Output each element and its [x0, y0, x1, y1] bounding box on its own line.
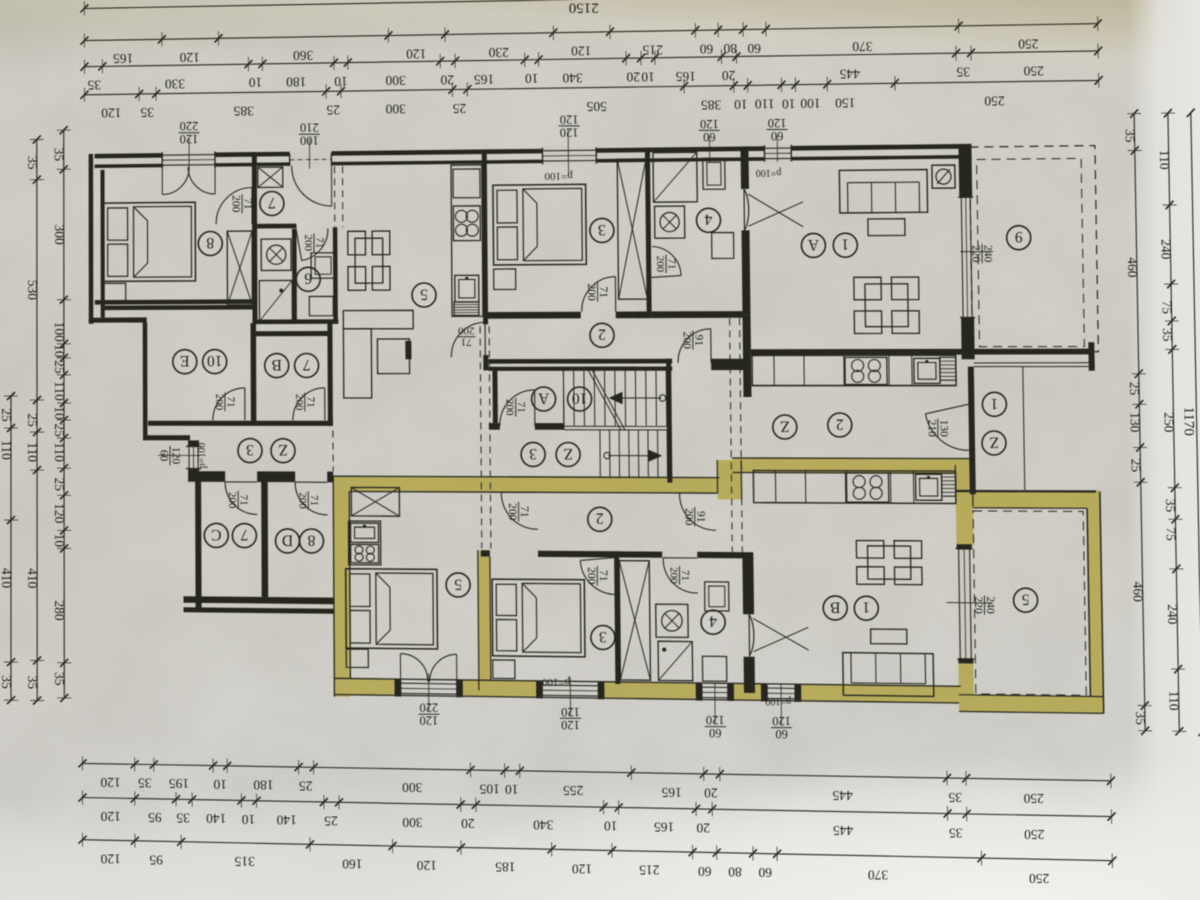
svg-text:8: 8: [206, 234, 214, 251]
svg-text:250: 250: [1023, 64, 1044, 79]
svg-text:Z: Z: [989, 433, 998, 450]
svg-text:25: 25: [299, 778, 313, 793]
svg-text:1: 1: [862, 599, 870, 616]
svg-text:180: 180: [286, 75, 307, 90]
svg-text:E: E: [180, 352, 189, 369]
svg-text:20: 20: [696, 821, 710, 836]
svg-text:120: 120: [417, 858, 438, 873]
svg-text:100: 100: [52, 322, 67, 343]
svg-text:71: 71: [308, 495, 320, 506]
svg-text:2: 2: [596, 510, 604, 527]
svg-text:3: 3: [599, 628, 607, 645]
svg-text:7: 7: [240, 526, 248, 543]
svg-text:300: 300: [402, 815, 423, 830]
svg-text:25: 25: [25, 413, 40, 427]
svg-text:200: 200: [302, 234, 314, 251]
svg-text:200: 200: [680, 332, 692, 350]
svg-text:71: 71: [679, 570, 691, 581]
svg-text:25: 25: [453, 101, 467, 116]
svg-text:35: 35: [1133, 711, 1148, 725]
svg-text:71: 71: [518, 506, 530, 518]
svg-text:200: 200: [457, 325, 474, 337]
svg-text:195: 195: [169, 776, 190, 791]
svg-text:165: 165: [474, 72, 495, 87]
svg-text:75: 75: [1164, 527, 1179, 541]
svg-text:200: 200: [585, 567, 597, 585]
svg-text:250: 250: [1023, 791, 1044, 806]
svg-text:35: 35: [1160, 328, 1175, 342]
svg-text:71: 71: [461, 336, 472, 348]
svg-text:B: B: [830, 598, 840, 615]
svg-text:10: 10: [782, 96, 796, 111]
svg-text:240: 240: [982, 245, 994, 263]
svg-text:105: 105: [479, 782, 500, 797]
svg-text:110: 110: [1167, 691, 1182, 711]
svg-text:10: 10: [52, 534, 67, 548]
svg-text:250: 250: [1024, 827, 1045, 842]
svg-text:35: 35: [948, 790, 962, 805]
svg-text:2: 2: [836, 415, 844, 432]
svg-text:250: 250: [1018, 36, 1039, 51]
svg-text:20: 20: [626, 70, 640, 85]
svg-text:150: 150: [835, 96, 856, 111]
svg-text:200: 200: [654, 256, 666, 273]
svg-text:35: 35: [949, 825, 963, 840]
svg-text:4: 4: [704, 211, 712, 228]
svg-text:370: 370: [868, 868, 889, 883]
svg-text:10: 10: [572, 389, 588, 406]
svg-text:p=100: p=100: [542, 676, 571, 688]
svg-text:460: 460: [1125, 257, 1140, 278]
svg-text:7: 7: [268, 194, 276, 211]
svg-text:25: 25: [326, 103, 340, 118]
svg-text:80: 80: [723, 41, 737, 56]
svg-text:25: 25: [1128, 459, 1143, 473]
svg-text:p=100: p=100: [765, 696, 791, 707]
svg-text:110: 110: [755, 97, 775, 112]
svg-text:Z: Z: [563, 445, 572, 462]
svg-text:250: 250: [1162, 412, 1177, 433]
svg-text:1170: 1170: [1181, 406, 1197, 435]
svg-text:p=100: p=100: [756, 167, 782, 178]
svg-text:75: 75: [1160, 301, 1175, 315]
svg-text:240: 240: [1159, 239, 1174, 259]
svg-text:35: 35: [0, 675, 14, 689]
svg-text:300: 300: [402, 780, 423, 795]
svg-text:10: 10: [207, 352, 223, 369]
svg-text:4: 4: [709, 613, 717, 630]
svg-text:200: 200: [213, 394, 225, 411]
svg-text:60: 60: [700, 42, 714, 57]
svg-text:110: 110: [1157, 150, 1172, 170]
svg-text:100: 100: [800, 96, 821, 111]
svg-text:120: 120: [560, 112, 579, 126]
svg-text:95: 95: [148, 810, 162, 825]
svg-text:230: 230: [488, 45, 509, 60]
svg-text:140: 140: [206, 811, 227, 826]
svg-text:35: 35: [87, 78, 101, 93]
svg-text:280: 280: [52, 600, 67, 621]
svg-text:165: 165: [113, 51, 134, 66]
svg-text:385: 385: [233, 104, 254, 119]
svg-text:240: 240: [984, 596, 996, 614]
svg-text:60: 60: [709, 726, 722, 740]
svg-text:71: 71: [314, 237, 326, 248]
svg-text:35: 35: [25, 676, 40, 690]
svg-text:385: 385: [701, 97, 722, 112]
svg-text:91: 91: [692, 334, 704, 346]
svg-text:71: 71: [304, 397, 316, 408]
svg-text:110: 110: [52, 442, 67, 462]
svg-text:35: 35: [52, 148, 67, 162]
svg-text:200: 200: [226, 492, 238, 509]
svg-text:180: 180: [253, 778, 274, 793]
svg-text:120: 120: [561, 718, 580, 732]
svg-text:10: 10: [52, 344, 67, 358]
svg-text:120: 120: [572, 861, 593, 876]
svg-text:340: 340: [533, 817, 554, 832]
svg-text:71: 71: [597, 570, 609, 582]
svg-text:7: 7: [302, 356, 310, 373]
svg-text:71: 71: [224, 397, 236, 408]
svg-text:165: 165: [676, 69, 697, 84]
svg-text:25: 25: [52, 360, 67, 374]
svg-text:220: 220: [180, 119, 199, 133]
svg-text:200: 200: [296, 492, 308, 509]
svg-text:25: 25: [1127, 382, 1142, 396]
svg-text:20: 20: [722, 68, 736, 83]
svg-text:10: 10: [242, 812, 256, 827]
svg-text:C: C: [211, 526, 221, 543]
svg-text:10: 10: [525, 71, 539, 86]
svg-text:D: D: [282, 531, 293, 548]
svg-text:10: 10: [505, 782, 519, 797]
svg-text:220: 220: [972, 596, 984, 614]
svg-text:35: 35: [1163, 499, 1178, 513]
svg-text:80: 80: [728, 865, 742, 880]
svg-text:10: 10: [604, 819, 618, 834]
svg-text:460: 460: [1131, 582, 1146, 603]
svg-text:300: 300: [385, 102, 406, 117]
svg-text:200: 200: [293, 394, 305, 411]
svg-text:5: 5: [454, 575, 462, 592]
svg-text:6: 6: [304, 270, 312, 287]
svg-text:210: 210: [925, 420, 937, 438]
svg-text:200: 200: [668, 567, 680, 584]
svg-text:35: 35: [138, 776, 152, 791]
svg-text:60: 60: [747, 41, 761, 56]
svg-text:A: A: [807, 236, 819, 253]
svg-text:25: 25: [52, 477, 67, 491]
svg-text:120: 120: [100, 851, 121, 866]
svg-text:10: 10: [52, 406, 67, 420]
svg-text:9: 9: [1015, 228, 1023, 245]
svg-text:120: 120: [100, 809, 121, 824]
svg-text:315: 315: [234, 854, 255, 869]
svg-text:120: 120: [179, 50, 200, 65]
svg-text:71: 71: [238, 495, 250, 506]
svg-text:360: 360: [293, 48, 314, 63]
svg-text:Z: Z: [780, 417, 789, 434]
svg-text:330: 330: [165, 76, 186, 91]
svg-text:505: 505: [586, 99, 607, 114]
svg-text:200: 200: [506, 503, 518, 521]
svg-text:71: 71: [666, 258, 678, 269]
svg-text:445: 445: [833, 823, 854, 838]
svg-text:250: 250: [984, 94, 1005, 109]
svg-text:200: 200: [504, 399, 516, 416]
svg-text:71: 71: [242, 198, 254, 210]
svg-text:120: 120: [700, 117, 719, 131]
svg-text:110: 110: [52, 381, 67, 401]
svg-text:130: 130: [937, 420, 949, 438]
svg-text:5: 5: [420, 285, 428, 302]
svg-text:250: 250: [1029, 871, 1050, 886]
svg-text:71: 71: [597, 286, 609, 298]
svg-text:200: 200: [230, 195, 242, 213]
svg-text:300: 300: [385, 73, 406, 88]
svg-text:120: 120: [52, 503, 67, 524]
svg-text:165: 165: [661, 785, 682, 800]
svg-text:25: 25: [324, 813, 338, 828]
svg-text:160: 160: [342, 856, 363, 871]
svg-text:340: 340: [562, 71, 583, 86]
svg-text:20: 20: [461, 816, 475, 831]
svg-text:185: 185: [495, 860, 516, 875]
svg-text:255: 255: [563, 783, 584, 798]
svg-text:410: 410: [25, 568, 40, 589]
svg-text:10: 10: [213, 777, 227, 792]
svg-text:3: 3: [529, 445, 537, 462]
svg-text:25: 25: [52, 423, 67, 437]
svg-text:Z: Z: [278, 441, 287, 458]
svg-text:35: 35: [140, 105, 154, 120]
svg-text:10: 10: [249, 75, 263, 90]
svg-text:165: 165: [654, 820, 675, 835]
svg-text:300: 300: [52, 224, 67, 245]
svg-text:91: 91: [694, 511, 706, 523]
svg-text:240: 240: [1165, 604, 1180, 625]
svg-text:445: 445: [832, 788, 853, 803]
svg-text:130: 130: [1128, 412, 1143, 433]
svg-text:200: 200: [682, 508, 694, 526]
svg-text:5: 5: [1021, 591, 1029, 608]
svg-text:60: 60: [698, 864, 712, 879]
svg-text:1: 1: [841, 236, 849, 253]
svg-text:120: 120: [571, 44, 592, 59]
svg-text:1: 1: [991, 395, 999, 412]
svg-text:2: 2: [598, 326, 606, 343]
svg-text:A: A: [537, 389, 549, 406]
svg-text:8: 8: [307, 531, 315, 548]
svg-text:2150: 2150: [569, 0, 599, 15]
svg-text:110: 110: [0, 440, 14, 460]
svg-text:410: 410: [0, 568, 14, 589]
svg-text:35: 35: [1123, 129, 1138, 143]
svg-text:120: 120: [101, 106, 122, 121]
svg-text:25: 25: [0, 408, 14, 422]
svg-text:110: 110: [25, 442, 40, 462]
svg-text:10: 10: [734, 97, 748, 112]
svg-text:120: 120: [560, 125, 579, 139]
svg-text:B: B: [272, 356, 282, 373]
svg-text:220: 220: [970, 245, 982, 263]
svg-text:200: 200: [585, 283, 597, 301]
svg-text:35: 35: [52, 672, 67, 686]
svg-text:215: 215: [639, 863, 660, 878]
svg-text:140: 140: [276, 813, 297, 828]
svg-text:3: 3: [246, 441, 254, 458]
svg-text:120: 120: [406, 46, 427, 61]
svg-text:120: 120: [768, 116, 787, 130]
svg-text:445: 445: [840, 66, 861, 81]
svg-text:120: 120: [420, 714, 439, 728]
svg-text:3: 3: [598, 221, 606, 238]
svg-text:370: 370: [852, 39, 873, 54]
svg-text:530: 530: [25, 280, 40, 301]
svg-text:210: 210: [300, 121, 319, 135]
svg-text:60: 60: [758, 865, 772, 880]
svg-text:120: 120: [100, 775, 121, 790]
svg-text:35: 35: [176, 811, 190, 826]
svg-text:10: 10: [641, 69, 655, 84]
svg-text:71: 71: [515, 402, 527, 413]
svg-text:95: 95: [149, 852, 163, 867]
svg-text:35: 35: [25, 156, 40, 170]
svg-text:60: 60: [775, 727, 788, 741]
svg-text:215: 215: [642, 43, 663, 58]
svg-text:35: 35: [956, 65, 970, 80]
svg-text:20: 20: [704, 786, 718, 801]
